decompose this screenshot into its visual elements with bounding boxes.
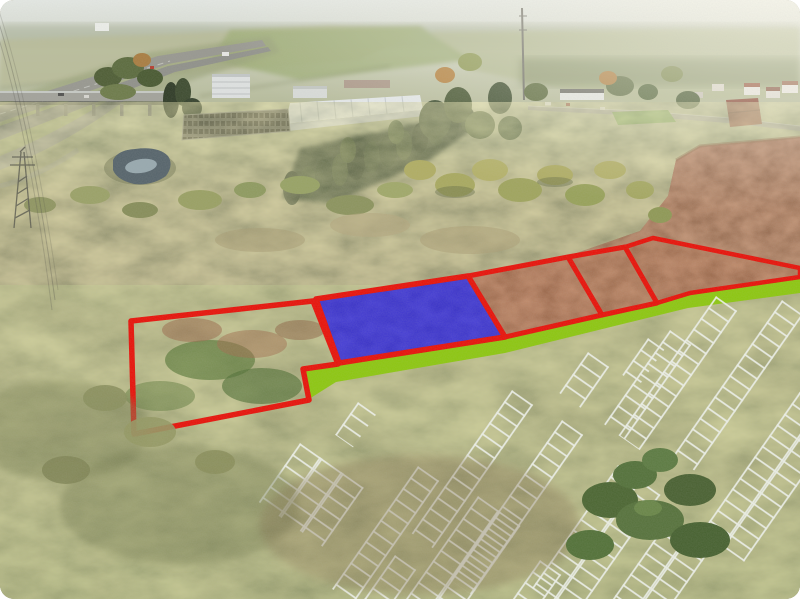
screenshot — [0, 0, 800, 599]
aerial-photo — [0, 0, 800, 599]
photo-grain — [0, 0, 800, 599]
